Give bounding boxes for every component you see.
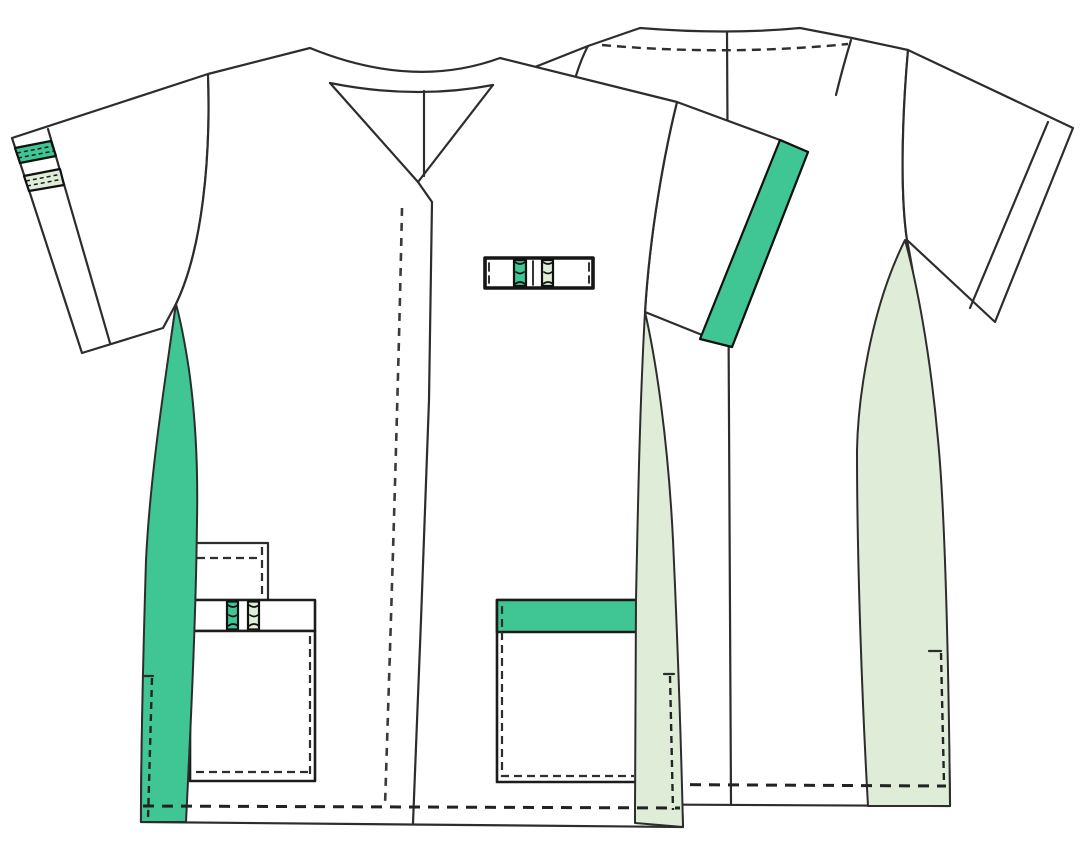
chest-pen-pocket (485, 258, 593, 288)
back-right-sleeve (903, 50, 1073, 322)
front-hem-stitch (143, 806, 680, 808)
right-pocket-green-band (497, 600, 638, 632)
chest-strip-outline (485, 258, 593, 288)
right-pocket-assembly (497, 600, 638, 782)
tunic-technical-drawing: short-sleeve v-neck medical tunic - tech… (0, 0, 1089, 856)
left-small-pocket (190, 543, 268, 600)
garment-flat-sketch: short-sleeve v-neck medical tunic - tech… (0, 0, 1089, 856)
left-main-pocket (190, 631, 315, 781)
